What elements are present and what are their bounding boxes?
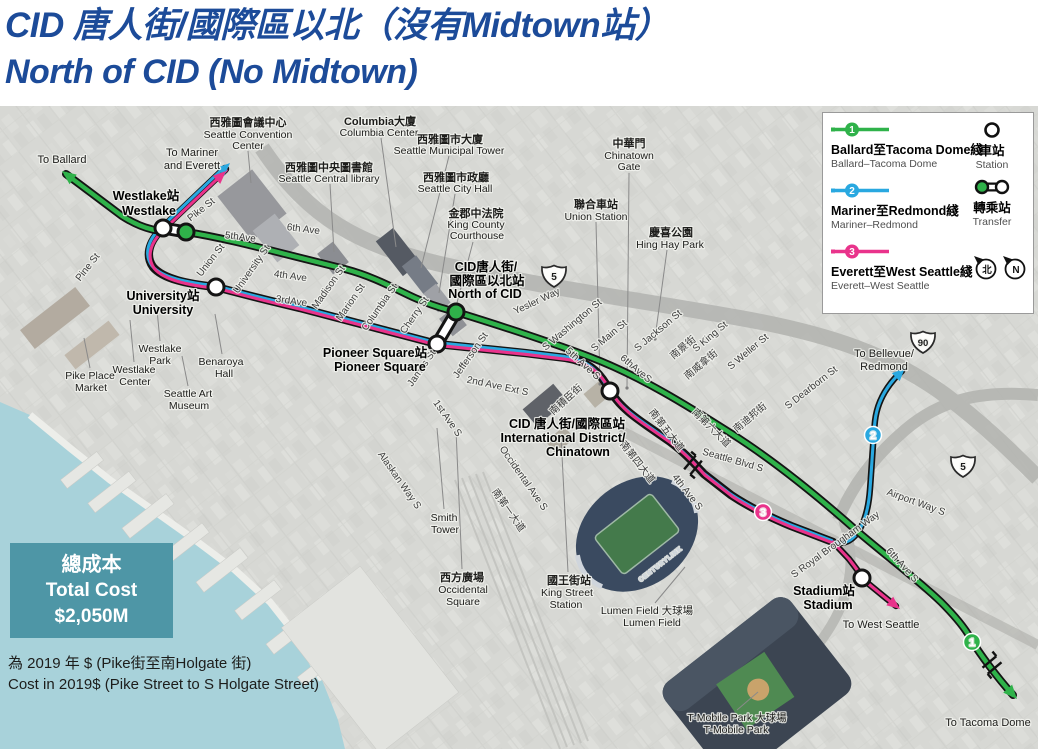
place-label: Seattle Central library: [279, 173, 381, 185]
station-label-stadium: Stadium站: [793, 583, 855, 598]
legend-station-zh: 車站: [959, 144, 1025, 159]
place-label: 西雅圖會議中心: [210, 115, 287, 129]
legend-station-en: Station: [959, 159, 1025, 172]
place-label: Benaroya: [199, 356, 244, 368]
station-label-stadium: Stadium: [803, 598, 852, 612]
legend-line-3: 3 Everett至West Seattle綫 Everett–West Sea…: [831, 243, 955, 293]
place-label: 中華門: [613, 136, 646, 150]
line-3-swatch-icon: 3: [831, 243, 891, 260]
place-label: Station: [550, 599, 583, 611]
place-label: Tower: [431, 524, 460, 536]
line-1-swatch-icon: 1: [831, 121, 891, 138]
place-label: Lumen Field 大球場: [601, 604, 694, 617]
svg-text:90: 90: [918, 338, 929, 349]
svg-text:1: 1: [849, 125, 855, 136]
destination-label: To Mariner: [166, 147, 218, 159]
place-label: 西雅圖市大廈: [417, 132, 483, 146]
place-label: Occidental: [438, 584, 488, 596]
legend: 1 Ballard至Tacoma Dome綫 Ballard–Tacoma Do…: [822, 112, 1034, 314]
place-label: Hall: [215, 368, 233, 380]
legend-line-2-zh: Mariner至Redmond綫: [831, 204, 955, 219]
place-label: T-Mobile Park: [704, 724, 770, 736]
place-label: T-Mobile Park 大球場: [687, 711, 787, 724]
station-circle-university: [208, 279, 224, 295]
place-label: Center: [119, 376, 151, 388]
place-label: Lumen Field: [623, 617, 681, 629]
badge-line-2-number: 2: [870, 430, 876, 442]
place-label: 西雅圖市政廳: [423, 170, 489, 184]
total-cost-zh: 總成本: [62, 552, 122, 578]
compass-north-en-icon: N: [1001, 254, 1028, 281]
station-circle-cid: [602, 383, 618, 399]
place-label: 金郡中法院: [448, 206, 504, 220]
total-cost-value: $2,050M: [55, 604, 129, 630]
station-circle-north-cid: [448, 304, 464, 320]
legend-lines: 1 Ballard至Tacoma Dome綫 Ballard–Tacoma Do…: [831, 121, 955, 304]
destination-label: Redmond: [860, 361, 908, 373]
legend-line-1: 1 Ballard至Tacoma Dome綫 Ballard–Tacoma Do…: [831, 121, 955, 171]
place-label: Westlake: [139, 343, 182, 355]
station-circle-pioneer-square: [429, 336, 445, 352]
destination-label: and Everett: [164, 160, 220, 172]
place-label: Square: [446, 596, 480, 608]
destination-label: To West Seattle: [843, 619, 920, 631]
place-label: Seattle City Hall: [418, 183, 493, 195]
page: CID 唐人街/國際區以北（沒有Midtown站） North of CID (…: [0, 0, 1038, 749]
badge-line-1-number: 1: [969, 637, 975, 649]
badge-line-3-number: 3: [760, 507, 766, 519]
transfer-icon: [971, 178, 1013, 196]
place-label: Columbia Center: [340, 127, 419, 139]
page-title: CID 唐人街/國際區以北（沒有Midtown站） North of CID (…: [5, 2, 669, 96]
cost-footnote-en: Cost in 2019$ (Pike Street to S Holgate …: [8, 674, 319, 695]
place-label: 西方廣場: [440, 570, 484, 584]
place-label: Hing Hay Park: [636, 239, 704, 251]
legend-line-3-en: Everett–West Seattle: [831, 280, 955, 293]
station-label-north-cid: North of CID: [448, 287, 522, 301]
station-label-cid: International District/: [500, 431, 626, 445]
compass-north-zh-icon: 北: [972, 254, 999, 281]
page-title-en: North of CID (No Midtown): [5, 49, 669, 96]
place-label: Seattle Art: [164, 388, 213, 400]
legend-line-1-zh: Ballard至Tacoma Dome綫: [831, 143, 955, 158]
legend-symbols: 車站 Station 轉乘站 Transfer: [959, 121, 1025, 229]
legend-transfer-zh: 轉乘站: [959, 201, 1025, 216]
station-circle-stadium: [854, 570, 870, 586]
station-label-pioneer-square: Pioneer Square站: [323, 345, 428, 360]
place-label: Union Station: [564, 211, 627, 223]
legend-line-1-en: Ballard–Tacoma Dome: [831, 158, 955, 171]
place-label: Smith: [431, 512, 458, 524]
station-label-cid: CID 唐人街/國際區站: [509, 416, 625, 431]
station-label-north-cid: 國際區以北站: [449, 273, 525, 288]
place-label: Museum: [169, 400, 210, 412]
station-label-university: University站: [127, 288, 200, 303]
svg-text:5: 5: [960, 462, 966, 473]
legend-line-2-en: Mariner–Redmond: [831, 219, 955, 232]
destination-label: To Tacoma Dome: [945, 717, 1030, 729]
place-label: 慶喜公園: [649, 225, 693, 239]
place-label: King Street: [541, 587, 593, 599]
station-label-westlake: Westlake站: [113, 188, 180, 203]
place-label: Westlake: [113, 364, 156, 376]
place-label: Market: [75, 382, 107, 394]
station-circle-westlake-existing: [155, 220, 171, 236]
place-label: Center: [232, 140, 264, 152]
legend-transfer-en: Transfer: [959, 216, 1025, 229]
total-cost-en: Total Cost: [46, 578, 137, 604]
station-icon: [982, 121, 1002, 139]
place-label: Gate: [618, 161, 641, 173]
place-label: 聯合車站: [574, 197, 618, 211]
place-label: Columbia大廈: [344, 114, 416, 128]
place-label: 國王街站: [547, 573, 591, 587]
svg-text:北: 北: [982, 264, 992, 276]
station-circle-westlake-new: [178, 224, 194, 240]
destination-label: To Ballard: [38, 154, 87, 166]
svg-text:3: 3: [849, 247, 855, 258]
svg-text:2: 2: [849, 186, 855, 197]
legend-line-3-zh: Everett至West Seattle綫: [831, 265, 955, 280]
place-label: 西雅圖中央圖書館: [285, 160, 373, 174]
svg-text:N: N: [1012, 265, 1019, 276]
svg-text:5: 5: [551, 272, 557, 283]
legend-line-2: 2 Mariner至Redmond綫 Mariner–Redmond: [831, 182, 955, 232]
station-label-pioneer-square: Pioneer Square: [334, 360, 426, 374]
place-label: Seattle Municipal Tower: [394, 145, 505, 157]
cost-footnote: 為 2019 年 $ (Pike街至南Holgate 街) Cost in 20…: [8, 653, 319, 695]
station-label-cid: Chinatown: [546, 445, 610, 459]
page-title-zh: CID 唐人街/國際區以北（沒有Midtown站）: [5, 2, 669, 49]
line-2-swatch-icon: 2: [831, 182, 891, 199]
station-label-north-cid: CID唐人街/: [455, 259, 518, 274]
destination-label: To Bellevue/: [854, 348, 915, 360]
compass: 北 N: [972, 254, 1028, 281]
cost-footnote-zh: 為 2019 年 $ (Pike街至南Holgate 街): [8, 653, 319, 674]
station-label-university: University: [133, 303, 193, 317]
station-label-westlake: Westlake: [122, 204, 176, 218]
place-label: Courthouse: [450, 230, 504, 242]
total-cost-box: 總成本 Total Cost $2,050M: [10, 543, 173, 638]
place-label: Pike Place: [65, 370, 115, 382]
